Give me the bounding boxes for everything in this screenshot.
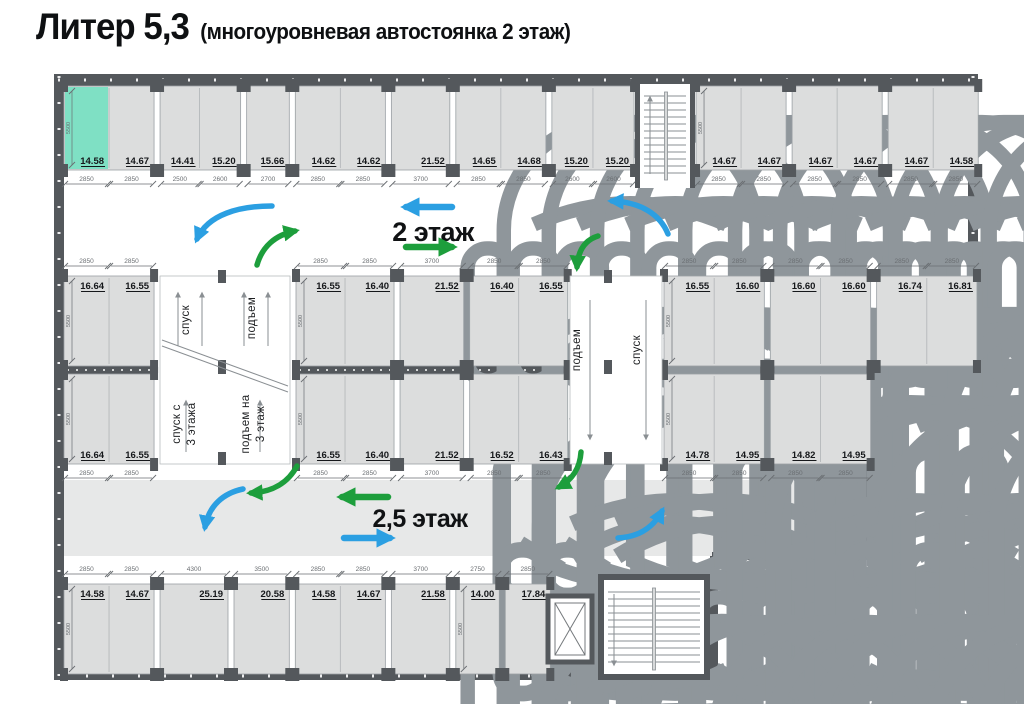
column — [60, 668, 68, 681]
column — [396, 269, 404, 282]
column — [546, 668, 554, 681]
stall-area-label: 16.43 — [539, 450, 563, 461]
dim-value: 2850 — [516, 176, 531, 183]
column — [60, 269, 68, 282]
stall-area-label: 15.20 — [564, 156, 588, 167]
dim-value: 2850 — [356, 566, 371, 573]
column — [973, 269, 981, 282]
stall-area-label: 16.81 — [948, 281, 972, 292]
ramp-down-from3-line1: спуск с — [171, 404, 183, 443]
column — [452, 79, 460, 92]
column — [150, 367, 158, 380]
column — [387, 668, 395, 681]
stall-area-label: 16.40 — [490, 281, 514, 292]
column — [546, 577, 554, 590]
ramp-up-to3-line1: подъем на — [240, 394, 252, 453]
stall-area-label: 16.40 — [365, 450, 389, 461]
column — [387, 79, 395, 92]
stair-rail — [665, 92, 668, 180]
stall-area-label: 16.52 — [490, 450, 514, 461]
depth-dim-value: 5500 — [66, 122, 72, 134]
dim-value: 2850 — [356, 176, 371, 183]
column — [291, 79, 299, 92]
ramp-left-down-label: спуск — [180, 304, 192, 335]
ramp-up-to3-line2: 3 этаж — [255, 406, 267, 442]
column — [156, 577, 164, 590]
column — [396, 367, 404, 380]
stall-area-label: 14.67 — [712, 156, 736, 167]
dim-value: 4300 — [187, 566, 202, 573]
column — [766, 367, 774, 380]
ramp-right-up-label: подъем — [571, 329, 583, 371]
column — [60, 367, 68, 380]
stall-area-label: 17.84 — [522, 589, 546, 600]
floor-plan: 14.582850550014.67285014.41250015.202600… — [0, 0, 1024, 704]
dim-value: 2850 — [788, 258, 803, 265]
depth-dim-value: 5500 — [66, 315, 72, 327]
stall-area-label: 16.55 — [539, 281, 563, 292]
column — [974, 164, 982, 177]
dim-value: 2850 — [124, 566, 139, 573]
stall-area-label: 16.74 — [898, 281, 922, 292]
page: Литер 5,3 (многоуровневая автостоянка 2 … — [0, 0, 1024, 704]
arrow-curve-top-left-blue — [197, 206, 272, 239]
dim-value: 2850 — [124, 176, 139, 183]
stall-area-label: 16.55 — [316, 450, 340, 461]
dim-value: 2850 — [788, 470, 803, 477]
column — [873, 269, 881, 282]
stall-area-label: 14.62 — [357, 156, 381, 167]
column — [60, 458, 68, 471]
dim-value: 3700 — [413, 566, 428, 573]
ramp-right: подъем спуск — [570, 270, 662, 465]
stall-area-label: 14.95 — [842, 450, 866, 461]
depth-dim-value: 5500 — [666, 413, 672, 425]
column — [150, 458, 158, 471]
column — [501, 668, 509, 681]
dim-value: 2600 — [565, 176, 580, 183]
ramp-right-down-label: спуск — [631, 334, 643, 365]
column — [230, 668, 238, 681]
dim-value: 2850 — [521, 566, 536, 573]
dim-value: 2850 — [124, 470, 139, 477]
column — [60, 79, 68, 92]
stall-area-label: 14.58 — [949, 156, 973, 167]
column — [884, 164, 892, 177]
dim-value: 3700 — [413, 176, 428, 183]
column — [291, 577, 299, 590]
column — [974, 79, 982, 92]
dim-value: 2850 — [471, 176, 486, 183]
dim-value: 2850 — [79, 176, 94, 183]
stall-area-label: 15.20 — [605, 156, 629, 167]
column — [884, 79, 892, 92]
dim-value: 3700 — [425, 258, 440, 265]
page-title: Литер 5,3 (многоуровневая автостоянка 2 … — [36, 6, 570, 48]
floor-2-5-label: 2,5 этаж — [372, 505, 468, 533]
column — [766, 269, 774, 282]
stall-area-label: 15.66 — [261, 156, 285, 167]
column — [867, 458, 875, 471]
stall-area-label: 14.68 — [517, 156, 541, 167]
dim-value: 2850 — [311, 176, 326, 183]
column — [466, 269, 474, 282]
column — [150, 269, 158, 282]
dim-value: 2850 — [807, 176, 822, 183]
dim-value: 2850 — [903, 176, 918, 183]
stall-area-label: 16.64 — [80, 281, 104, 292]
dim-value: 2850 — [711, 176, 726, 183]
column — [548, 164, 556, 177]
column — [466, 458, 474, 471]
stall-area-label: 14.67 — [757, 156, 781, 167]
column — [230, 577, 238, 590]
stall-area-label: 16.55 — [316, 281, 340, 292]
ramp-left: спуск подъем спуск с 3 этажа подъем на 3… — [160, 270, 290, 465]
column — [466, 367, 474, 380]
dim-value: 2850 — [313, 470, 328, 477]
dim-value: 2850 — [79, 258, 94, 265]
stall-area-label: 14.67 — [125, 589, 149, 600]
dim-value: 3700 — [425, 470, 440, 477]
dim-value: 2850 — [536, 470, 551, 477]
dim-value: 2850 — [732, 258, 747, 265]
dim-value: 2850 — [838, 470, 853, 477]
arrow-curve-top-left-green — [257, 231, 295, 265]
stall-area-label: 14.95 — [736, 450, 760, 461]
dim-value: 2850 — [948, 176, 963, 183]
stairwell-top — [635, 84, 695, 188]
stall-area-label: 21.52 — [421, 156, 445, 167]
dim-value: 2500 — [173, 176, 188, 183]
title-main: Литер 5,3 — [36, 6, 189, 48]
dim-value: 2850 — [487, 470, 502, 477]
title-sub: (многоуровневая автостоянка 2 этаж) — [200, 19, 570, 45]
column — [60, 164, 68, 177]
stall-area-label: 21.52 — [435, 450, 459, 461]
stall-area-label: 14.58 — [80, 589, 104, 600]
depth-dim-value: 5500 — [698, 122, 704, 134]
stall-area-label: 21.52 — [435, 281, 459, 292]
stall-area-label: 15.20 — [212, 156, 236, 167]
dim-value: 2850 — [311, 566, 326, 573]
dim-value: 2850 — [79, 566, 94, 573]
column — [291, 668, 299, 681]
ramp-left-up-label: подъем — [246, 297, 258, 339]
stall-area-label: 20.58 — [261, 589, 285, 600]
dim-value: 2600 — [606, 176, 621, 183]
dim-value: 2850 — [682, 258, 697, 265]
column — [387, 164, 395, 177]
column — [292, 367, 300, 380]
dim-value: 2850 — [894, 258, 909, 265]
dim-value: 2850 — [536, 258, 551, 265]
stair-rail — [653, 588, 656, 670]
stall-area-label: 14.82 — [792, 450, 816, 461]
dim-value: 2850 — [362, 470, 377, 477]
column — [291, 164, 299, 177]
column — [548, 79, 556, 92]
stall-area-label: 14.67 — [808, 156, 832, 167]
stall-area-label: 16.40 — [365, 281, 389, 292]
stall-area-label: 14.41 — [171, 156, 195, 167]
dim-value: 2700 — [261, 176, 276, 183]
stall-area-label: 14.65 — [472, 156, 496, 167]
dim-value: 2850 — [313, 258, 328, 265]
stall-area-label: 16.60 — [792, 281, 816, 292]
column — [396, 458, 404, 471]
column — [788, 164, 796, 177]
column — [452, 164, 460, 177]
column — [156, 668, 164, 681]
dim-value: 2850 — [838, 258, 853, 265]
stall-area-label: 14.58 — [312, 589, 336, 600]
dim-value: 2850 — [852, 176, 867, 183]
column — [243, 79, 251, 92]
column — [243, 164, 251, 177]
depth-dim-value: 5500 — [66, 623, 72, 635]
stall-area-label: 16.55 — [685, 281, 709, 292]
column — [292, 269, 300, 282]
stairwell-bottom — [598, 574, 710, 680]
depth-dim-value: 5500 — [298, 413, 304, 425]
stall-area-label: 16.60 — [842, 281, 866, 292]
column — [788, 79, 796, 92]
dim-value: 2850 — [732, 470, 747, 477]
column — [766, 458, 774, 471]
dim-value: 2850 — [362, 258, 377, 265]
stall-area-label: 14.67 — [904, 156, 928, 167]
dim-value: 2850 — [79, 470, 94, 477]
depth-dim-value: 5500 — [458, 623, 464, 635]
elevator — [548, 596, 592, 662]
column — [452, 668, 460, 681]
dim-value: 2850 — [487, 258, 502, 265]
stall-area-label: 16.60 — [736, 281, 760, 292]
stall-area-label: 16.55 — [125, 281, 149, 292]
dim-value: 2850 — [756, 176, 771, 183]
ramp-down-from3-line2: 3 этажа — [186, 402, 198, 445]
depth-dim-value: 5500 — [66, 413, 72, 425]
depth-dim-value: 5500 — [298, 315, 304, 327]
column — [973, 360, 981, 373]
stall-area-label: 14.78 — [685, 450, 709, 461]
dim-value: 2750 — [470, 566, 485, 573]
column — [501, 577, 509, 590]
stall-area-label: 14.58 — [80, 156, 104, 167]
floor-2-label: 2 этаж — [392, 217, 475, 247]
depth-dim-value: 5500 — [666, 315, 672, 327]
column — [156, 164, 164, 177]
stall-area-label: 21.58 — [421, 589, 445, 600]
column — [387, 577, 395, 590]
dim-value: 2850 — [682, 470, 697, 477]
stall-area-label: 14.62 — [312, 156, 336, 167]
column — [156, 79, 164, 92]
column — [452, 577, 460, 590]
stall-area-label: 14.67 — [853, 156, 877, 167]
column — [60, 577, 68, 590]
stall-area-label: 14.67 — [125, 156, 149, 167]
column — [867, 367, 875, 380]
dim-value: 2850 — [124, 258, 139, 265]
dim-value: 2600 — [213, 176, 228, 183]
stall-area-label: 16.64 — [80, 450, 104, 461]
stall-area-label: 16.55 — [125, 450, 149, 461]
stall-area-label: 14.00 — [470, 589, 494, 600]
dim-value: 2850 — [945, 258, 960, 265]
dim-value: 3500 — [254, 566, 269, 573]
stall-area-label: 14.67 — [357, 589, 381, 600]
stall-area-label: 25.19 — [199, 589, 223, 600]
